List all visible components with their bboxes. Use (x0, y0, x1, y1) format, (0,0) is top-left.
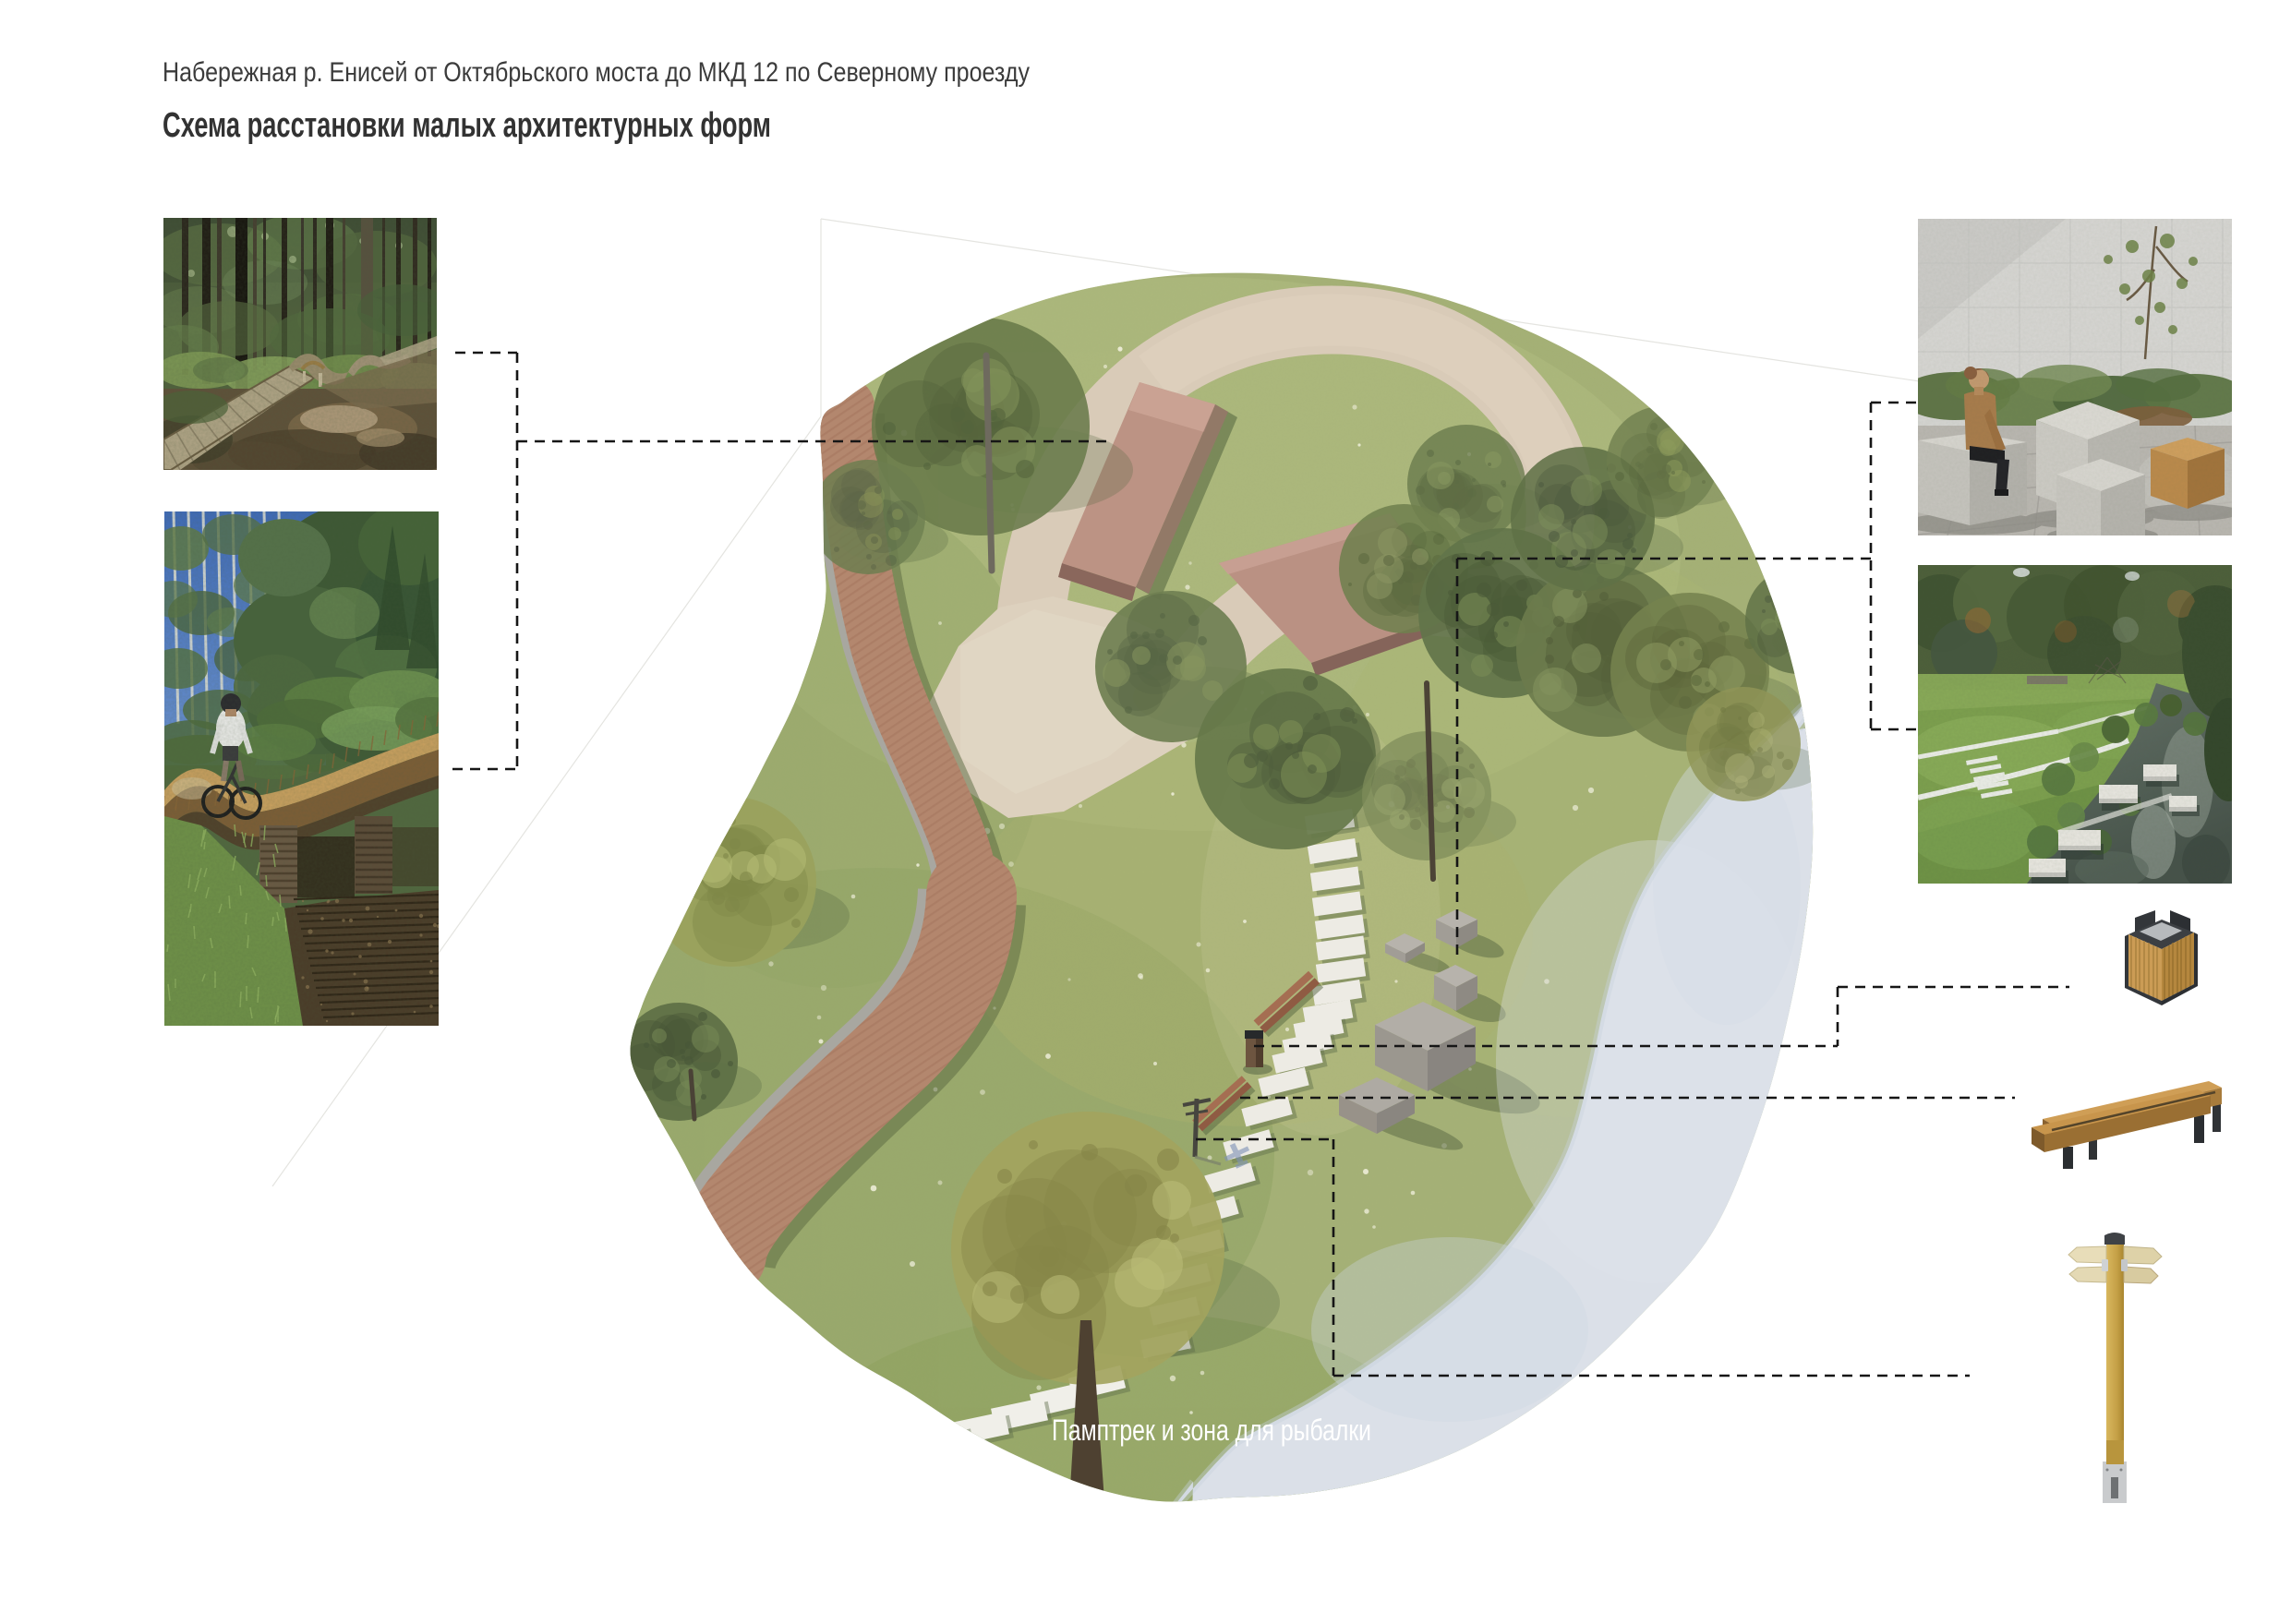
svg-text:Памптрек и зона для рыбалки: Памптрек и зона для рыбалки (1052, 1413, 1371, 1447)
svg-text:Набережная р. Енисей от Октябр: Набережная р. Енисей от Октябрьского мос… (163, 57, 1030, 88)
svg-text:Схема расстановки малых архите: Схема расстановки малых архитектурных фо… (163, 106, 771, 145)
